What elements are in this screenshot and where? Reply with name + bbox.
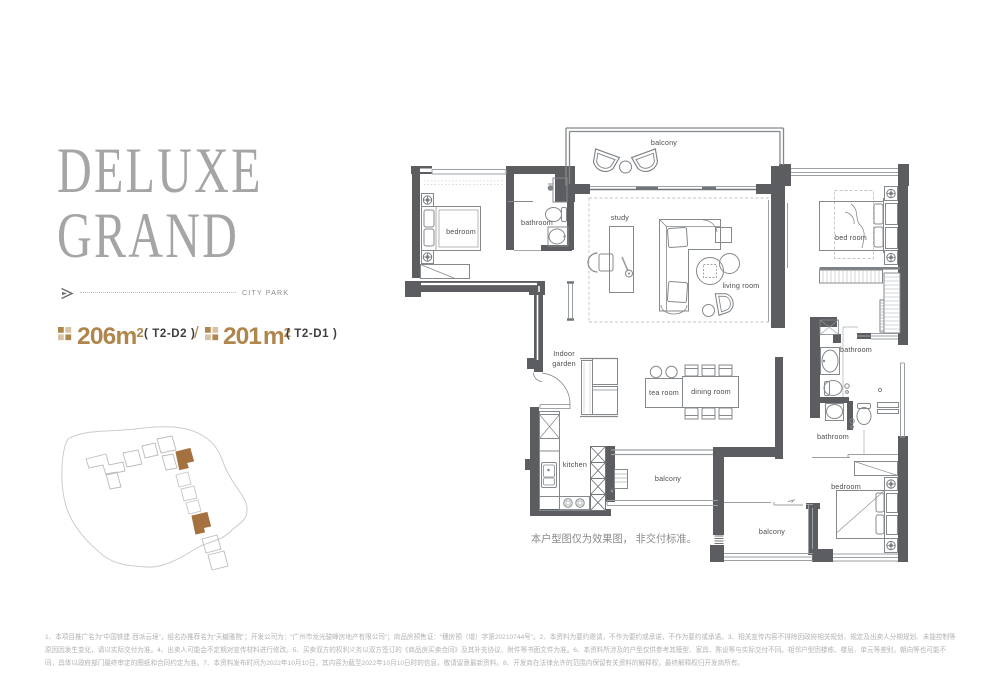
svg-text:balcony: balcony (651, 138, 677, 147)
svg-text:Indoor: Indoor (553, 349, 575, 358)
svg-text:study: study (611, 213, 629, 222)
svg-text:balcony: balcony (655, 474, 681, 483)
svg-text:bathroom: bathroom (521, 218, 553, 227)
svg-text:kitchen: kitchen (563, 460, 587, 469)
svg-text:balcony: balcony (759, 527, 785, 536)
svg-text:dining room: dining room (691, 387, 731, 396)
svg-text:bathroom: bathroom (840, 345, 872, 354)
svg-text:bathroom: bathroom (817, 432, 849, 441)
svg-text:tea room: tea room (649, 388, 679, 397)
svg-text:garden: garden (552, 359, 576, 368)
svg-text:bedroom: bedroom (446, 227, 476, 236)
svg-text:bedroom: bedroom (831, 482, 861, 491)
svg-text:bed room: bed room (835, 233, 867, 242)
svg-text:living room: living room (723, 281, 760, 290)
